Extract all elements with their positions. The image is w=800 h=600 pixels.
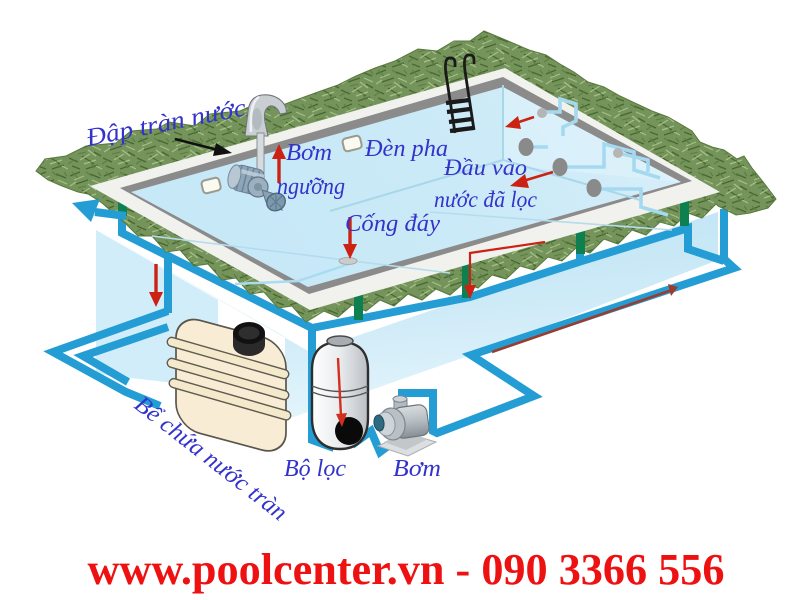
svg-text:www.poolcenter.vn - 090 3366 5: www.poolcenter.vn - 090 3366 556 bbox=[88, 545, 725, 594]
svg-text:Bơm: Bơm bbox=[286, 140, 332, 166]
svg-text:nước đã lọc: nước đã lọc bbox=[434, 187, 537, 212]
svg-text:Bộ lọc: Bộ lọc bbox=[284, 456, 346, 482]
svg-text:Đèn pha: Đèn pha bbox=[364, 136, 448, 162]
svg-text:Cống đáy: Cống đáy bbox=[345, 211, 440, 237]
svg-text:Bơm: Bơm bbox=[393, 456, 441, 482]
svg-text:Đầu vào: Đầu vào bbox=[443, 155, 527, 180]
svg-text:ngưỡng: ngưỡng bbox=[277, 174, 345, 200]
